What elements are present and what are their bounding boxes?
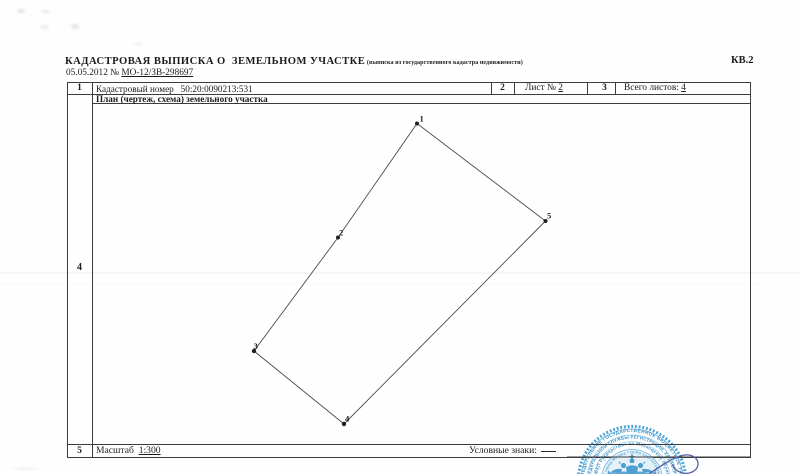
svg-text:1: 1 — [420, 114, 424, 124]
svg-text:5: 5 — [547, 211, 551, 221]
svg-text:2: 2 — [339, 228, 343, 238]
svg-text:3: 3 — [254, 341, 258, 351]
svg-text:4: 4 — [345, 414, 350, 424]
